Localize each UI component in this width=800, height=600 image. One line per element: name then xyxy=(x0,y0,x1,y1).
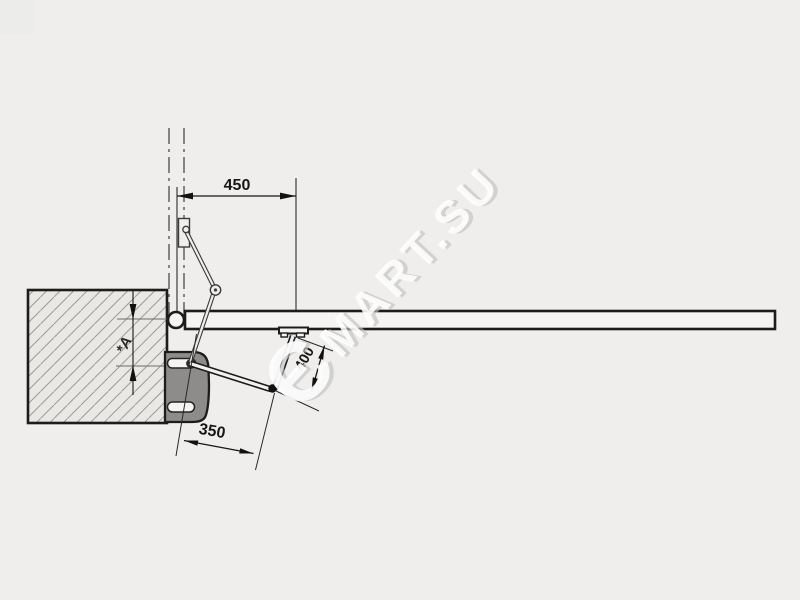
technical-drawing-canvas: *A 450 xyxy=(0,0,800,600)
corner-shade xyxy=(0,0,34,34)
gate-leaf-bar xyxy=(185,311,775,329)
gate-hinge xyxy=(168,312,184,328)
bracket-slot-bottom xyxy=(168,402,195,412)
gate-operator-diagram: *A 450 xyxy=(0,0,800,600)
arm-open-top-joint xyxy=(183,226,189,232)
dim-450-label: 450 xyxy=(224,177,251,194)
operator-bracket xyxy=(165,352,209,422)
pillar-hatched-section xyxy=(28,290,167,423)
arm-open-elbow-pin xyxy=(214,288,217,291)
